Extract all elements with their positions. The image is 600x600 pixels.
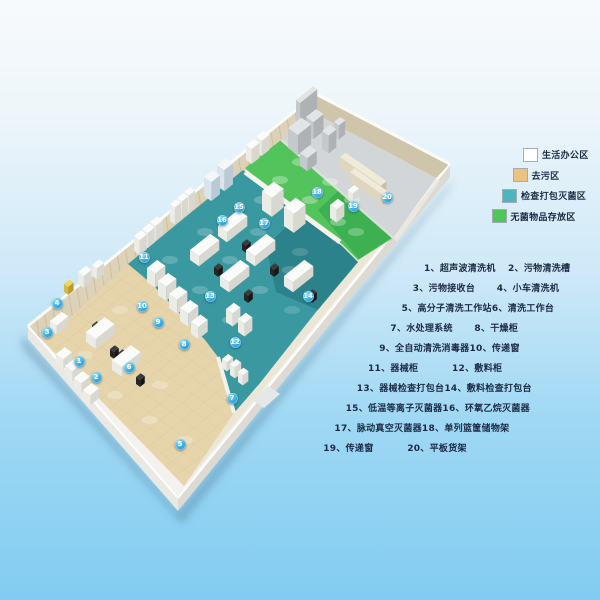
equipment-item: 4、小车清洗机 bbox=[497, 281, 559, 294]
equipment-row: 17、脉动真空灭菌器18、单列篮筐储物架 bbox=[334, 421, 509, 434]
equipment-row: 3、污物接收台4、小车清洗机 bbox=[413, 281, 559, 294]
equipment-item: 10、传递窗 bbox=[469, 341, 519, 354]
equipment-row: 19、传递窗20、平板货架 bbox=[323, 441, 467, 454]
floor-marker-1: 1 bbox=[74, 356, 85, 367]
floor-marker-5: 5 bbox=[175, 439, 186, 450]
floor-marker-19: 19 bbox=[348, 201, 359, 212]
floor-marker-8: 8 bbox=[179, 339, 190, 350]
floor-marker-3: 3 bbox=[42, 327, 53, 338]
floor-marker-12: 12 bbox=[230, 337, 241, 348]
floor-marker-6: 6 bbox=[124, 362, 135, 373]
equipment-row: 11、器械柜12、敷料柜 bbox=[368, 361, 502, 374]
floor-marker-11: 11 bbox=[139, 252, 150, 263]
equipment-item: 8、干燥柜 bbox=[474, 321, 518, 334]
floor-marker-15: 15 bbox=[234, 202, 245, 213]
floor-marker-4: 4 bbox=[52, 298, 63, 309]
legend-label: 去污区 bbox=[532, 169, 560, 182]
equipment-row: 7、水处理系统8、干燥柜 bbox=[390, 321, 518, 334]
equipment-item: 14、敷料检查打包台 bbox=[444, 381, 532, 394]
floor-marker-13: 13 bbox=[205, 291, 216, 302]
equipment-item: 5、高分子清洗工作站 bbox=[402, 301, 492, 314]
scene: 生活办公区去污区检查打包灭菌区无菌物品存放区 1、超声波清洗机2、污物清洗槽3、… bbox=[0, 0, 600, 600]
floor-marker-7: 7 bbox=[227, 393, 238, 404]
floor-marker-9: 9 bbox=[153, 317, 164, 328]
floor-marker-10: 10 bbox=[137, 301, 148, 312]
floor-marker-20: 20 bbox=[382, 192, 393, 203]
equipment-item: 16、环氧乙烷灭菌器 bbox=[442, 401, 530, 414]
equipment-item: 12、敷料柜 bbox=[452, 361, 502, 374]
equipment-item: 13、器械检查打包台 bbox=[357, 381, 445, 394]
legend-item-sterile-storage: 无菌物品存放区 bbox=[493, 210, 576, 223]
legend-item-decontamination: 去污区 bbox=[514, 169, 560, 182]
equipment-item: 9、全自动清洗消毒器 bbox=[379, 341, 469, 354]
floor-marker-14: 14 bbox=[303, 291, 314, 302]
equipment-item: 20、平板货架 bbox=[407, 441, 467, 454]
equipment-item: 7、水处理系统 bbox=[390, 321, 474, 334]
equipment-item: 6、清洗工作台 bbox=[492, 301, 554, 314]
equipment-item: 1、超声波清洗机 bbox=[424, 261, 508, 274]
equipment-item: 17、脉动真空灭菌器 bbox=[334, 421, 422, 434]
legend-label: 无菌物品存放区 bbox=[511, 210, 576, 223]
legend-swatch bbox=[493, 210, 506, 222]
legend-swatch bbox=[514, 169, 527, 181]
equipment-item: 3、污物接收台 bbox=[413, 281, 497, 294]
equipment-item: 18、单列篮筐储物架 bbox=[422, 421, 510, 434]
equipment-row: 5、高分子清洗工作站6、清洗工作台 bbox=[402, 301, 555, 314]
legend-label: 检查打包灭菌区 bbox=[521, 189, 586, 202]
equipment-item: 19、传递窗 bbox=[323, 441, 407, 454]
floor-marker-16: 16 bbox=[217, 215, 228, 226]
legend-swatch bbox=[503, 190, 516, 202]
floor-marker-17: 17 bbox=[259, 218, 270, 229]
equipment-item: 15、低温等离子灭菌器 bbox=[346, 401, 443, 414]
legend-item-inspect-pack-sterilize: 检查打包灭菌区 bbox=[503, 189, 586, 202]
equipment-item: 2、污物清洗槽 bbox=[508, 261, 570, 274]
equipment-row: 9、全自动清洗消毒器10、传递窗 bbox=[379, 341, 520, 354]
legend-item-office: 生活办公区 bbox=[524, 148, 589, 161]
legend-label: 生活办公区 bbox=[542, 148, 589, 161]
floor-marker-2: 2 bbox=[91, 372, 102, 383]
floor-marker-18: 18 bbox=[312, 187, 323, 198]
legend-swatch bbox=[524, 149, 537, 161]
equipment-item: 11、器械柜 bbox=[368, 361, 452, 374]
facility-isometric-plan bbox=[0, 0, 600, 600]
equipment-row: 13、器械检查打包台14、敷料检查打包台 bbox=[357, 381, 532, 394]
equipment-row: 1、超声波清洗机2、污物清洗槽 bbox=[424, 261, 570, 274]
equipment-row: 15、低温等离子灭菌器16、环氧乙烷灭菌器 bbox=[346, 401, 530, 414]
